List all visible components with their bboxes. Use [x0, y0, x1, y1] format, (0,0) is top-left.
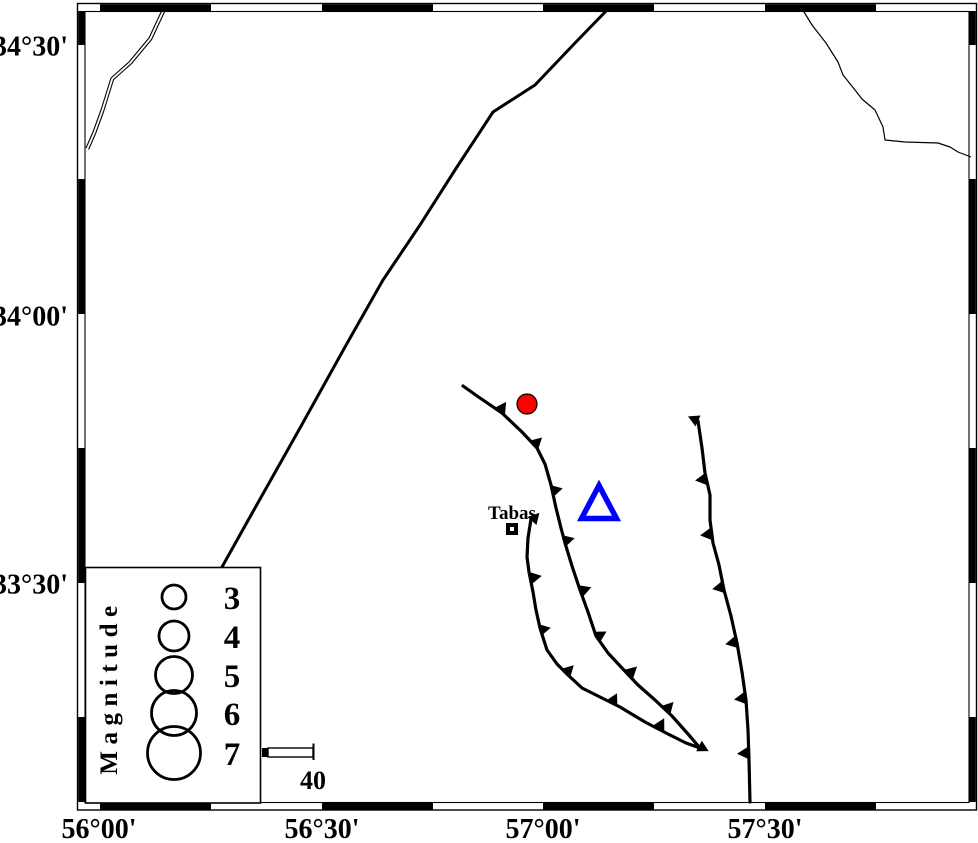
tabas-town-marker-center [510, 527, 514, 531]
frame-tick-segment [765, 4, 876, 11]
frame-tick-segment [969, 717, 975, 802]
legend-magnitude-label-4: 4 [224, 620, 241, 656]
frame-tick-segment [100, 4, 211, 11]
frame-tick-segment [78, 448, 84, 583]
lon-label-3: 57°30' [728, 814, 803, 843]
frame-tick-segment [969, 11, 975, 45]
frame-tick-segment [322, 803, 433, 810]
city-label-tabas: Tabas [488, 503, 536, 524]
frame-tick-segment [78, 179, 84, 314]
frame-tick-segment [969, 179, 975, 314]
lon-label-0: 56°00' [62, 814, 137, 843]
lon-label-2: 57°00' [506, 814, 581, 843]
scale-bar-label: 40 [300, 766, 326, 795]
tabas-seismic-map: Magnitude 34567 40 34°30'34°00'33°30'56°… [0, 0, 978, 843]
frame-tick-segment [543, 4, 654, 11]
lon-label-1: 56°30' [285, 814, 360, 843]
frame-tick-segment [543, 803, 654, 810]
lat-label-2: 33°30' [0, 570, 68, 601]
scale-bar-filled-block [262, 748, 268, 757]
legend-title: Magnitude [96, 599, 123, 774]
lat-label-1: 34°00' [0, 302, 68, 333]
frame-tick-segment [765, 803, 876, 810]
legend-magnitude-label-6: 6 [224, 697, 241, 733]
frame-tick-segment [78, 11, 84, 45]
legend-magnitude-label-7: 7 [224, 737, 241, 773]
epicenter-circle-marker [517, 394, 537, 414]
frame-tick-segment [322, 4, 433, 11]
magnitude-legend: Magnitude 34567 [86, 568, 261, 804]
scale-bar-open-block [268, 748, 313, 757]
frame-tick-segment [100, 803, 211, 810]
legend-magnitude-label-3: 3 [224, 581, 241, 617]
map-canvas: Magnitude 34567 40 34°30'34°00'33°30'56°… [0, 0, 978, 843]
legend-magnitude-label-5: 5 [224, 659, 241, 695]
lat-label-0: 34°30' [0, 32, 68, 63]
frame-tick-segment [969, 448, 975, 583]
frame-tick-segment [78, 717, 84, 802]
